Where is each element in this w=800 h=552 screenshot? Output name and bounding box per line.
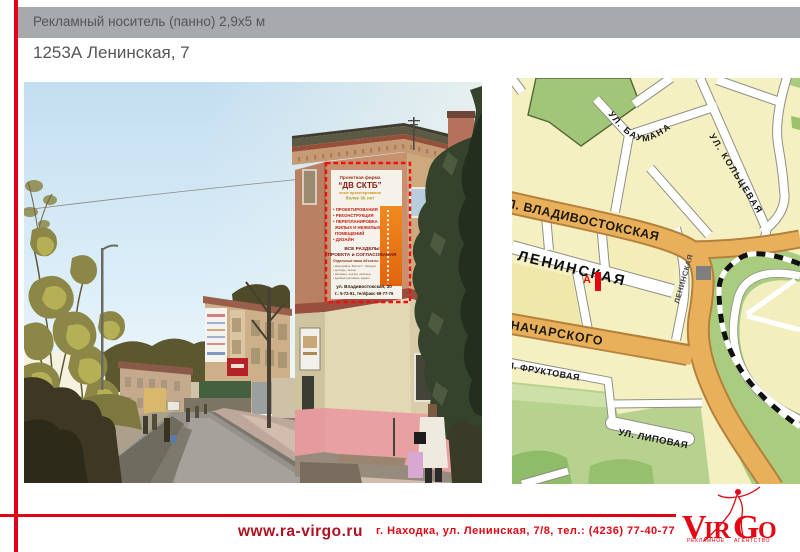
svg-text:РЕКЛАМНОЕ: РЕКЛАМНОЕ [687, 538, 725, 544]
svg-text:АГЕНТСТВО: АГЕНТСТВО [734, 538, 770, 544]
svg-text:Отдельные наши объекты:: Отдельные наши объекты: [333, 259, 379, 263]
svg-text:ул. Владивостокская, 30: ул. Владивостокская, 30 [336, 284, 392, 289]
svg-text:• ПЕРЕПЛАНИРОВКА: • ПЕРЕПЛАНИРОВКА [333, 219, 378, 224]
svg-text:т.: 5-72-91, тел/факс 69-77-76: т.: 5-72-91, тел/факс 69-77-76 [335, 291, 394, 296]
svg-text:ПОМЕЩЕНИЙ: ПОМЕЩЕНИЙ [335, 231, 364, 236]
svg-text:ЖИЛЫХ И НЕЖИЛЫХ: ЖИЛЫХ И НЕЖИЛЫХ [334, 225, 381, 230]
svg-text:• ДИЗАЙН: • ДИЗАЙН [333, 237, 354, 242]
svg-text:А: А [583, 274, 591, 286]
svg-text:• ПРОЕКТИРОВАНИЯ: • ПРОЕКТИРОВАНИЯ [333, 207, 378, 212]
svg-text:ВСЕ РАЗДЕЛЫ: ВСЕ РАЗДЕЛЫ [344, 246, 380, 252]
svg-text:ПРОЕКТА и СОГЛАСОВАНИЯ: ПРОЕКТА и СОГЛАСОВАНИЯ [328, 252, 397, 258]
svg-text:более 30 лет: более 30 лет [346, 195, 376, 201]
svg-text:“ДВ СКТБ”: “ДВ СКТБ” [338, 181, 381, 190]
svg-text:опыт проектирования: опыт проектирования [339, 191, 381, 195]
svg-text:• РЕКОНСТРУКЦИЯ: • РЕКОНСТРУКЦИЯ [333, 213, 374, 218]
svg-text:• административные здания: • административные здания [333, 276, 370, 280]
svg-text:Проектная фирма: Проектная фирма [340, 174, 381, 180]
